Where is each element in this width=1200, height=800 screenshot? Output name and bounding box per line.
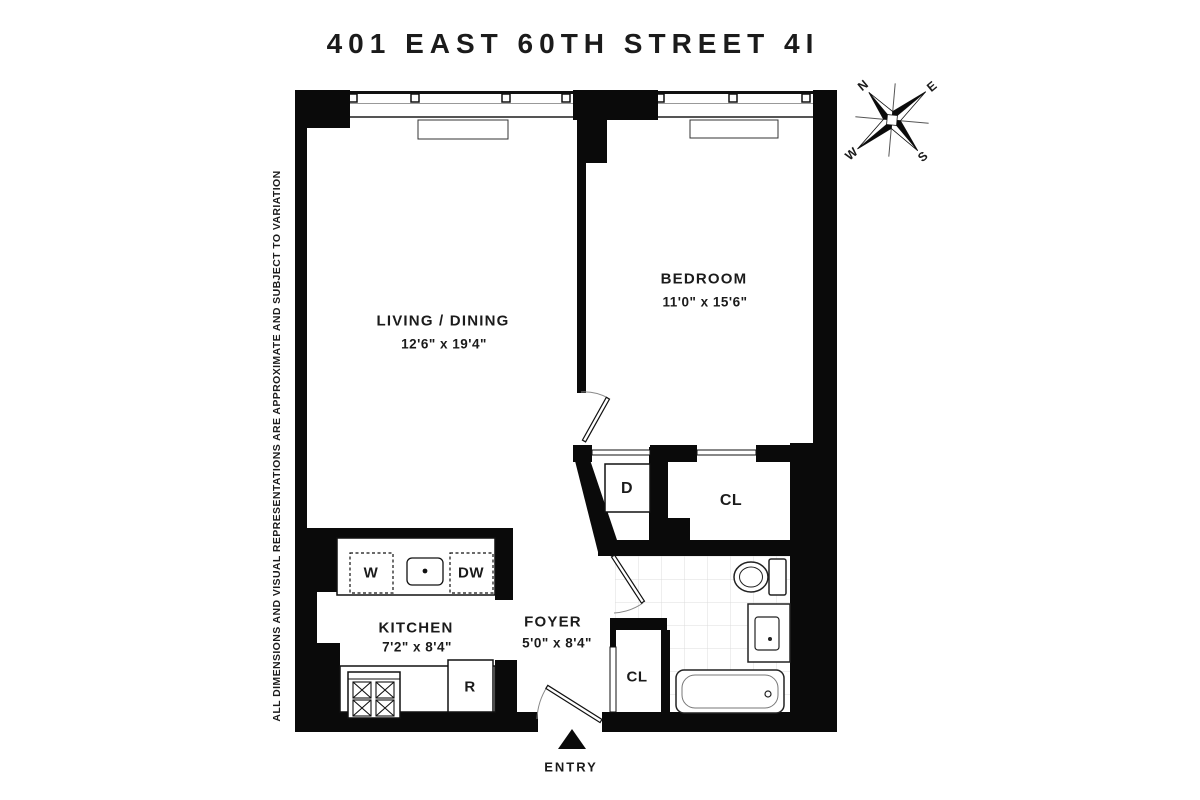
window-band-bedroom bbox=[656, 91, 813, 118]
foyer-closet-label: CL bbox=[627, 670, 648, 685]
entry-arrow-icon bbox=[558, 729, 586, 749]
compass-s: S bbox=[915, 149, 930, 165]
bathtub-icon bbox=[676, 670, 784, 713]
room-dims-kitchen: 7'2" x 8'4" bbox=[382, 640, 452, 654]
bedroom-closet-label: CL bbox=[720, 493, 742, 509]
radiator-living bbox=[418, 120, 508, 139]
room-label-foyer: FOYER bbox=[524, 615, 582, 630]
refrigerator-label: R bbox=[464, 680, 475, 695]
bedroom-closet-door bbox=[697, 450, 756, 455]
page-title: 401 EAST 60TH STREET 4I bbox=[327, 30, 820, 58]
dryer-label: D bbox=[621, 481, 633, 497]
dishwasher-label: DW bbox=[458, 566, 484, 581]
dryer-closet-door bbox=[592, 450, 650, 455]
vanity-sink-icon bbox=[748, 604, 790, 662]
radiator-bedroom bbox=[690, 120, 778, 138]
toilet-icon bbox=[734, 559, 786, 595]
wall-niche bbox=[317, 592, 343, 643]
entry-label: ENTRY bbox=[544, 761, 598, 774]
compass-n: N bbox=[855, 77, 871, 94]
window-band-living bbox=[349, 91, 573, 118]
floor-plan-drawing: N E S W bbox=[0, 0, 1200, 800]
bedroom-door bbox=[581, 392, 609, 442]
compass-e: E bbox=[924, 79, 939, 95]
compass-w: W bbox=[842, 145, 860, 163]
entry-door bbox=[537, 685, 602, 722]
room-label-living: LIVING / DINING bbox=[376, 314, 509, 329]
disclaimer-text: ALL DIMENSIONS AND VISUAL REPRESENTATION… bbox=[272, 170, 283, 721]
room-dims-bedroom: 11'0" x 15'6" bbox=[662, 295, 747, 309]
stove-icon bbox=[348, 672, 400, 718]
sink-icon bbox=[407, 558, 443, 585]
room-dims-living: 12'6" x 19'4" bbox=[401, 337, 487, 351]
floor-plan-page: N E S W 401 EAST 60TH STREET 4I ALL DIME… bbox=[0, 0, 1200, 800]
room-dims-foyer: 5'0" x 8'4" bbox=[522, 636, 592, 650]
room-label-bedroom: BEDROOM bbox=[661, 272, 748, 287]
foyer-closet-door bbox=[610, 647, 616, 712]
room-label-kitchen: KITCHEN bbox=[378, 621, 453, 636]
washer-label: W bbox=[364, 566, 379, 581]
